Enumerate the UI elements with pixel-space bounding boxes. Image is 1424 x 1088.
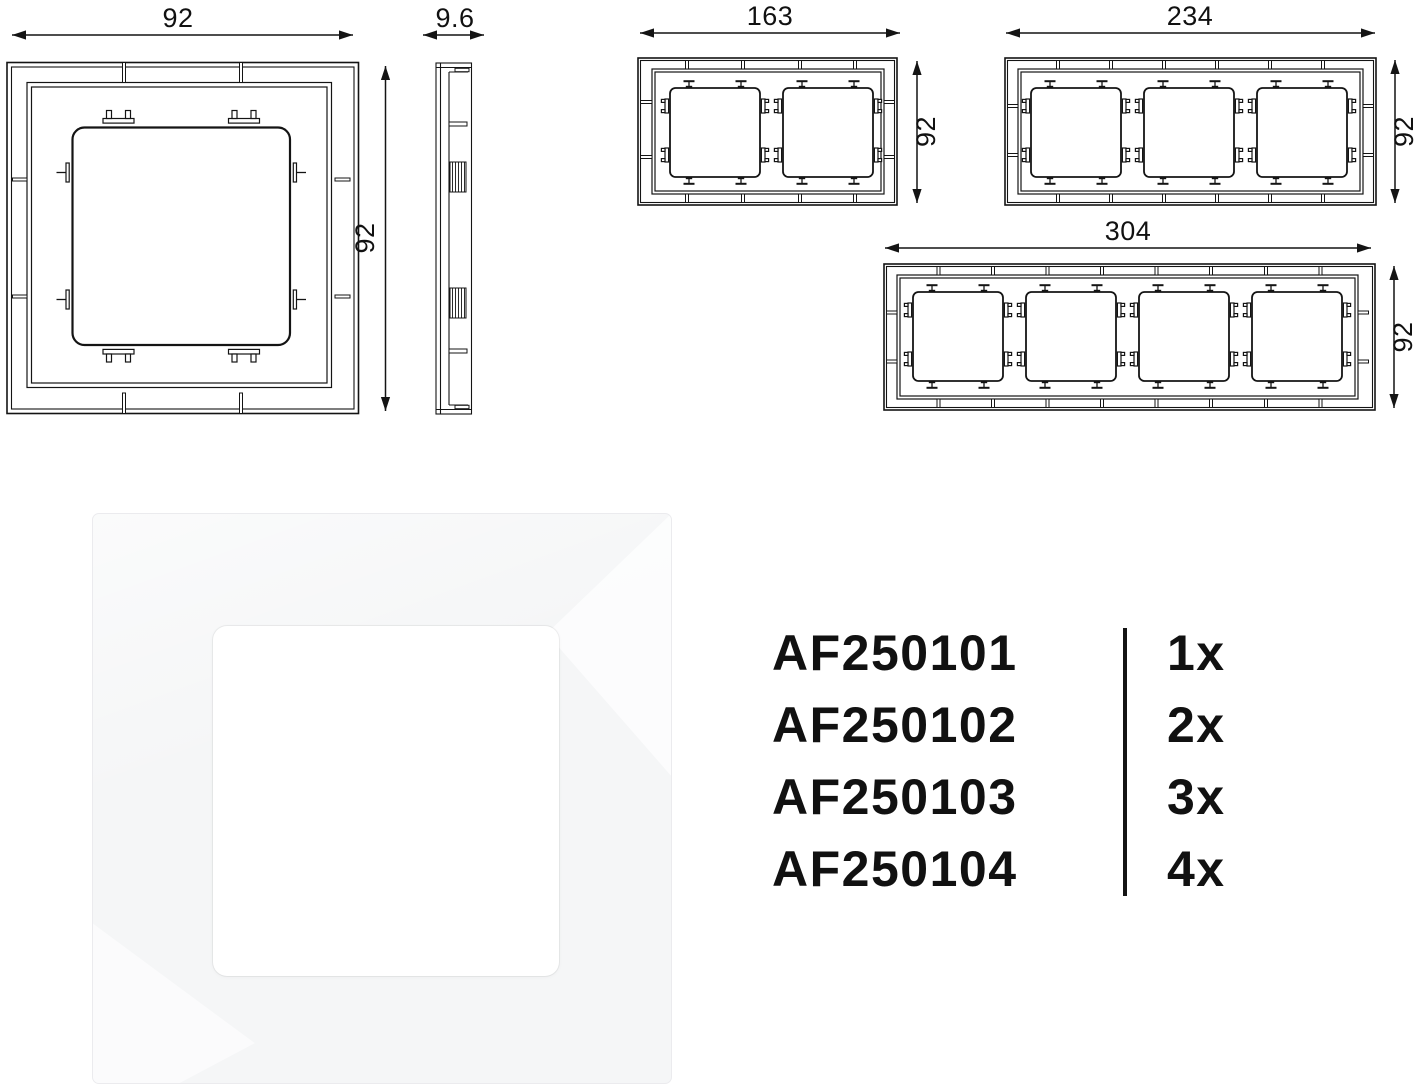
front-view-1g-drawing: 92 92 — [0, 0, 400, 430]
product-photo-1g-frame — [92, 513, 672, 1084]
module-opening-2g-1 — [661, 81, 768, 184]
dimension-height-2g: 92 — [911, 61, 941, 203]
module-opening-3g-3 — [1248, 81, 1355, 184]
dimension-height-1g: 92 — [350, 66, 390, 411]
gang-quantity: 4x — [1167, 840, 1226, 898]
dimension-depth: 9.6 — [423, 3, 484, 40]
module-opening-4g-1 — [904, 285, 1011, 388]
table-row: AF250102 2x — [772, 689, 1332, 761]
table-row: AF250104 4x — [772, 833, 1332, 905]
frame-opening-cutout — [213, 626, 559, 976]
product-code: AF250104 — [772, 840, 1167, 898]
front-view-2g-drawing: 163 92 — [615, 0, 1010, 230]
order-table: AF250101 1x AF250102 2x AF250103 3x AF25… — [772, 617, 1332, 907]
front-view-3g-drawing: 234 92 — [1000, 0, 1424, 230]
module-opening-4g-3 — [1130, 285, 1237, 388]
dim-label-height-2g: 92 — [911, 116, 941, 147]
dim-label-height-4g: 92 — [1388, 321, 1418, 352]
gang-quantity: 1x — [1167, 624, 1226, 682]
dim-label-width-3g: 234 — [1167, 1, 1214, 31]
front-view-4g-drawing: 304 92 — [880, 218, 1424, 430]
module-opening-3g-2 — [1135, 81, 1242, 184]
module-opening-3g-1 — [1022, 81, 1129, 184]
side-profile-outline — [436, 63, 472, 414]
table-row: AF250101 1x — [772, 617, 1332, 689]
dim-label-width-4g: 304 — [1105, 218, 1152, 246]
clip-hatch-top — [450, 162, 466, 192]
module-opening-4g-2 — [1017, 285, 1124, 388]
gang-quantity: 2x — [1167, 696, 1226, 754]
dim-label-height-1g: 92 — [350, 222, 380, 253]
dim-label-height-3g: 92 — [1389, 116, 1419, 147]
dimension-width-2g: 163 — [640, 1, 900, 38]
gang-quantity: 3x — [1167, 768, 1226, 826]
table-row: AF250103 3x — [772, 761, 1332, 833]
dimension-height-3g: 92 — [1389, 60, 1419, 203]
dimension-width-4g: 304 — [885, 218, 1371, 253]
dim-label-width-1g: 92 — [162, 3, 193, 33]
product-code: AF250103 — [772, 768, 1167, 826]
spec-sheet: 92 92 9.6 — [0, 0, 1424, 1088]
dimension-width-3g: 234 — [1006, 1, 1375, 38]
side-view-drawing: 9.6 — [400, 0, 520, 430]
module-opening-4g-4 — [1243, 285, 1350, 388]
table-divider-line — [1123, 628, 1127, 896]
module-opening-2g-2 — [774, 81, 881, 184]
dimension-height-4g: 92 — [1388, 266, 1418, 408]
dim-label-width-2g: 163 — [747, 1, 794, 31]
module-opening-1g — [57, 111, 307, 363]
product-code: AF250102 — [772, 696, 1167, 754]
dim-label-depth: 9.6 — [435, 3, 474, 33]
dimension-width-1g: 92 — [12, 3, 353, 40]
clip-hatch-bottom — [450, 288, 466, 318]
product-code: AF250101 — [772, 624, 1167, 682]
